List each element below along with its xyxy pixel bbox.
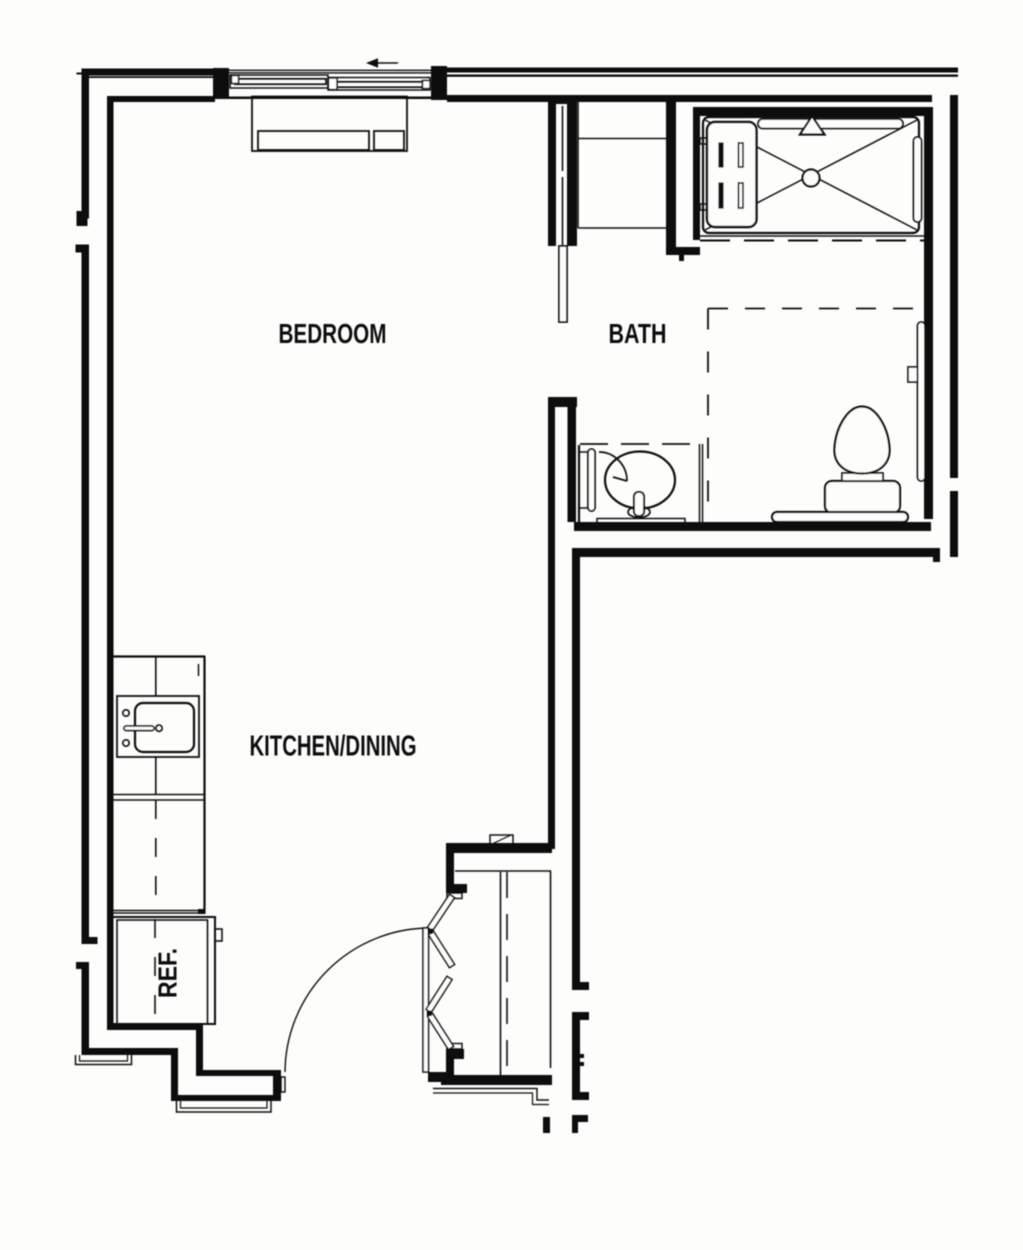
svg-text:KITCHEN/DINING: KITCHEN/DINING [250, 731, 417, 763]
svg-text:BATH: BATH [609, 318, 667, 349]
svg-text:REF.: REF. [153, 948, 183, 998]
svg-text:BEDROOM: BEDROOM [279, 318, 387, 349]
